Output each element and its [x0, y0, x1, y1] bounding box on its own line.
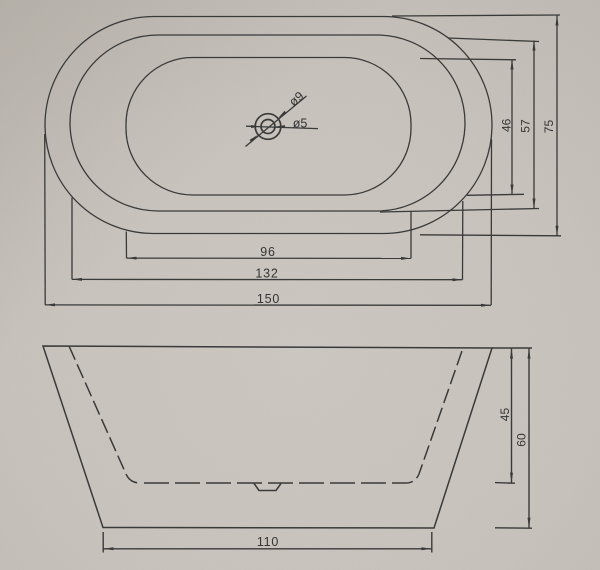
svg-text:96: 96 — [260, 245, 276, 259]
svg-text:132: 132 — [255, 267, 278, 281]
svg-text:45: 45 — [498, 408, 512, 422]
svg-text:110: 110 — [257, 535, 279, 549]
svg-text:57: 57 — [519, 119, 533, 133]
svg-text:75: 75 — [542, 120, 556, 134]
svg-text:150: 150 — [257, 292, 280, 306]
svg-text:60: 60 — [515, 433, 529, 447]
svg-text:ø5: ø5 — [293, 117, 308, 131]
svg-text:46: 46 — [500, 118, 514, 132]
